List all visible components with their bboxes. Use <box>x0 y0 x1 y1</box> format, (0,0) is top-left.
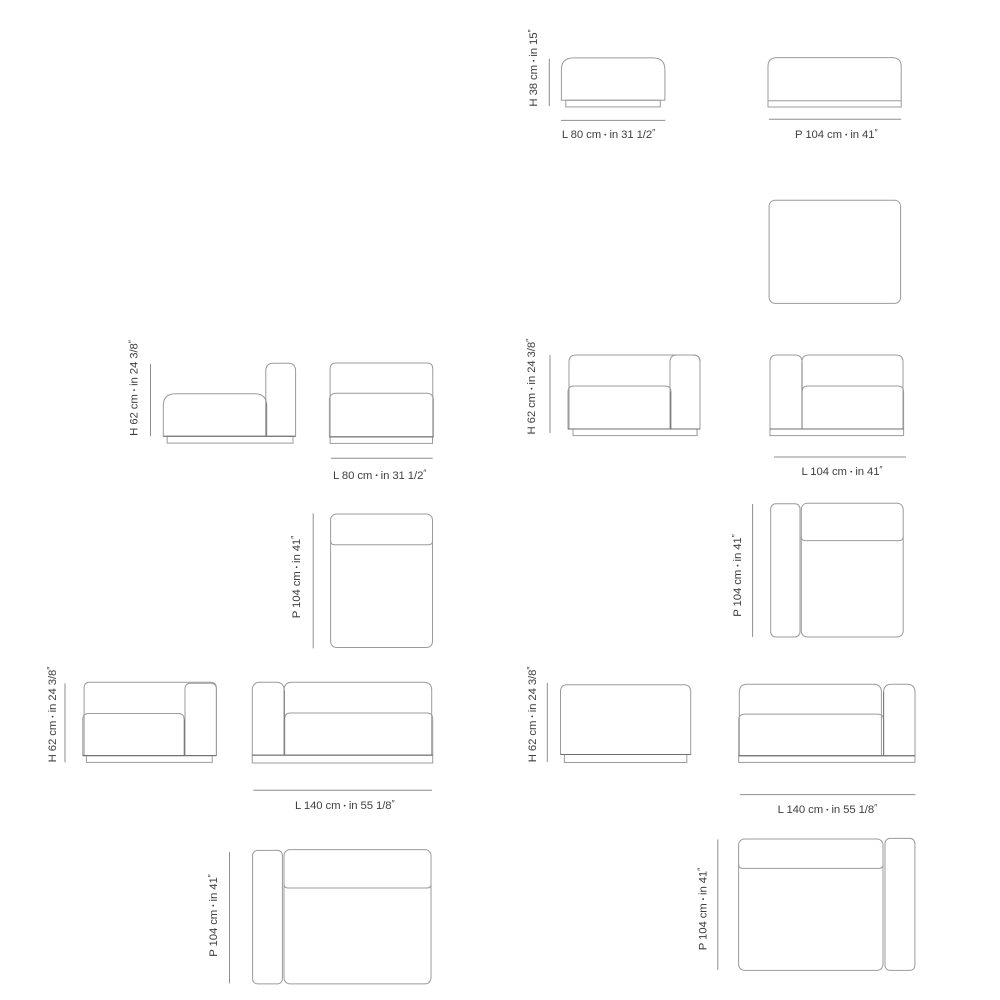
svg-text:P 104 cm • in 41″: P 104 cm • in 41″ <box>696 867 710 950</box>
svg-text:L 140 cm • in 55 1/8″: L 140 cm • in 55 1/8″ <box>295 799 395 813</box>
svg-text:L 104 cm • in 41″: L 104 cm • in 41″ <box>801 465 883 479</box>
svg-text:H 62 cm • in 24 3/8″: H 62 cm • in 24 3/8″ <box>525 666 539 763</box>
svg-text:L 140 cm • in 55 1/8″: L 140 cm • in 55 1/8″ <box>778 803 878 817</box>
svg-text:P 104 cm • in 41″: P 104 cm • in 41″ <box>730 533 744 616</box>
svg-text:H 62 cm • in 24 3/8″: H 62 cm • in 24 3/8″ <box>127 339 141 436</box>
svg-text:L 80 cm • in 31 1/2″: L 80 cm • in 31 1/2″ <box>562 128 656 142</box>
svg-text:H 62 cm • in 24 3/8″: H 62 cm • in 24 3/8″ <box>46 666 60 763</box>
svg-text:P 104 cm • in 41″: P 104 cm • in 41″ <box>289 535 303 618</box>
svg-text:P 104 cm • in 41″: P 104 cm • in 41″ <box>795 128 878 142</box>
svg-text:L 80 cm • in 31 1/2″: L 80 cm • in 31 1/2″ <box>333 468 427 482</box>
svg-text:P 104 cm • in 41″: P 104 cm • in 41″ <box>206 873 220 956</box>
svg-text:H 38 cm • in 15″: H 38 cm • in 15″ <box>526 29 540 107</box>
svg-text:H 62 cm • in 24 3/8″: H 62 cm • in 24 3/8″ <box>524 338 538 435</box>
